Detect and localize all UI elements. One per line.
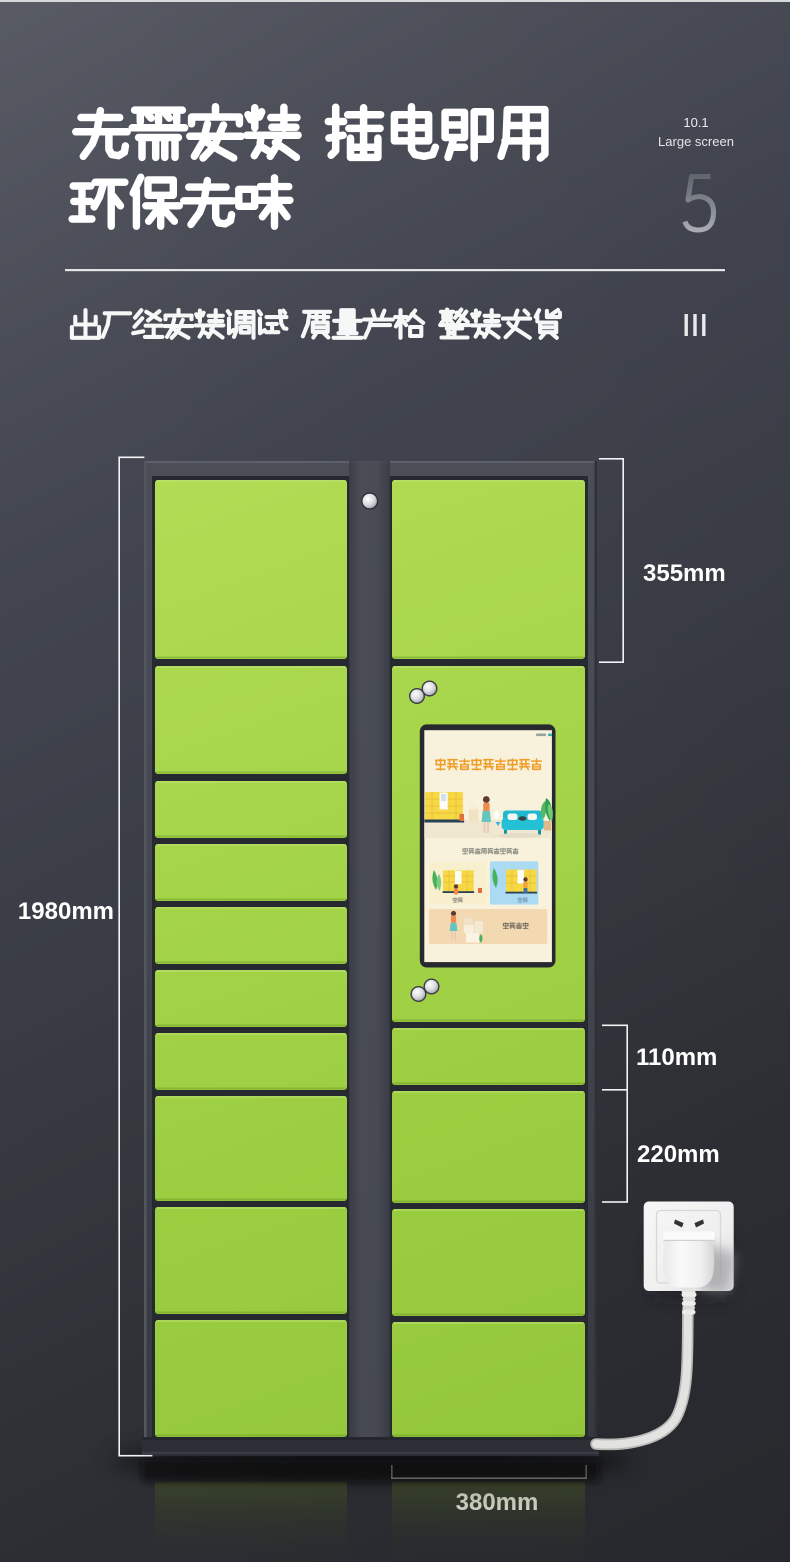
svg-text:10.1: 10.1 xyxy=(683,115,708,130)
svg-text:Large screen: Large screen xyxy=(658,134,734,149)
svg-text:220mm: 220mm xyxy=(637,1141,720,1168)
svg-text:110mm: 110mm xyxy=(636,1044,717,1071)
svg-text:1980mm: 1980mm xyxy=(18,898,114,925)
svg-text:355mm: 355mm xyxy=(643,560,726,587)
